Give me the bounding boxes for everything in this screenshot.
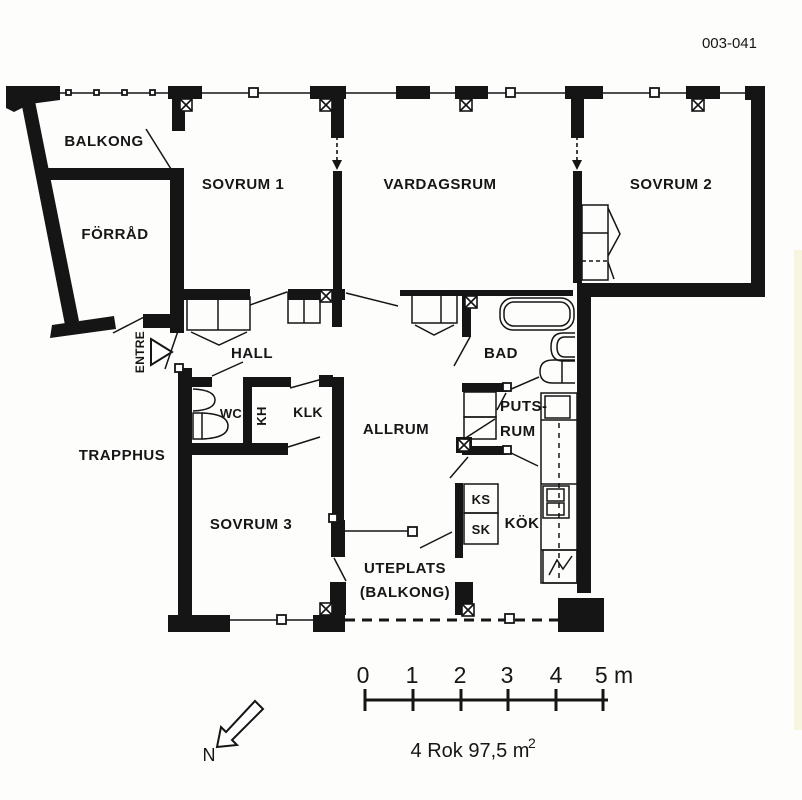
balkong-door [146, 129, 171, 169]
hall-wardrobe-1 [187, 297, 250, 345]
scale-bar [365, 689, 608, 711]
shaft-icon [458, 439, 470, 451]
room-label-wc: WC [220, 406, 243, 421]
walls [6, 86, 765, 632]
putsrum-upper-door [509, 377, 539, 390]
room-label-balkong: BALKONG [64, 133, 143, 150]
wall-forrad-east [170, 168, 184, 333]
shaft-icon [320, 603, 332, 615]
shaft-icon [462, 604, 474, 616]
room-label-entre: ENTRE [133, 331, 147, 373]
kok-door [450, 457, 468, 478]
putsrum-lower-door [509, 452, 538, 466]
area-caption: 4 Rok 97,5 m [411, 740, 530, 762]
room-label-klk: KLK [293, 404, 323, 420]
bad-door [454, 337, 470, 366]
appliance-zigzag-icon [549, 556, 572, 575]
sovrum1-door [250, 292, 287, 305]
hall-wardrobe-3 [412, 294, 457, 335]
wall-sovrum3-west [178, 368, 192, 615]
down-arrow-icon [332, 160, 342, 170]
entre-outer-door [113, 316, 146, 333]
room-label-sovrum2: SOVRUM 2 [630, 176, 712, 193]
bad-toilet [551, 333, 575, 361]
area-caption-exponent: 2 [528, 735, 536, 751]
shaft-icon [465, 296, 477, 308]
wall-balkong-forrad [40, 168, 180, 180]
drawing-number: 003-041 [702, 35, 757, 52]
north-arrow-icon [217, 701, 263, 747]
scale-tick-5: 5 m [595, 662, 633, 688]
sovrum2-wardrobe [582, 205, 620, 280]
room-label-putsrum-line1: PUTS- [500, 398, 548, 415]
room-label-uteplats-line2: (BALKONG) [360, 584, 450, 601]
shaft-icon [180, 99, 192, 111]
room-label-putsrum-line2: RUM [500, 423, 536, 440]
room-label-sovrum1: SOVRUM 1 [202, 176, 284, 193]
entre-arrow-icon [151, 339, 172, 365]
bad-sink [540, 360, 575, 383]
room-label-hall: HALL [231, 345, 273, 362]
room-label-vardagsrum: VARDAGSRUM [383, 176, 496, 193]
putsrum-shelves [464, 392, 496, 439]
shaft-icon [692, 99, 704, 111]
scale-tick-4: 4 [550, 662, 563, 688]
scale-tick-2: 2 [454, 662, 467, 688]
scan-artifact [794, 250, 802, 730]
shaft-icon [320, 99, 332, 111]
scale-tick-1: 1 [406, 662, 419, 688]
room-label-kh: KH [254, 406, 269, 425]
north-arrow [217, 701, 263, 747]
room-label-forrad: FÖRRÅD [81, 226, 148, 243]
vardagsrum-door [346, 293, 398, 306]
north-label: N [203, 745, 216, 765]
floorplan-page: 003-041 BALKONG FÖRRÅD SOVRUM 1 VARDAGSR… [0, 0, 802, 800]
uteplats-door-west [334, 558, 346, 581]
room-label-allrum: ALLRUM [363, 421, 429, 438]
room-label-uteplats-line1: UTEPLATS [364, 560, 446, 577]
scale-tick-0: 0 [357, 662, 370, 688]
opening-arrows [332, 136, 582, 170]
hall-leader-line [212, 362, 243, 376]
room-label-sk: SK [472, 522, 491, 537]
sovrum3-door [288, 437, 320, 447]
room-label-ks: KS [472, 492, 491, 507]
scale-tick-3: 3 [501, 662, 514, 688]
uteplats-door-allrum [420, 532, 452, 548]
room-label-bad: BAD [484, 345, 518, 362]
wc-sink [193, 389, 215, 411]
down-arrow-icon [572, 160, 582, 170]
room-label-kok: KÖK [505, 515, 540, 532]
floorplan-svg: 003-041 BALKONG FÖRRÅD SOVRUM 1 VARDAGSR… [0, 0, 802, 800]
kitchen-counter [541, 393, 577, 583]
room-label-trapphus: TRAPPHUS [79, 447, 166, 464]
wall-east-lower [577, 283, 591, 593]
room-label-sovrum3: SOVRUM 3 [210, 516, 292, 533]
wall-forrad-bottom [50, 316, 116, 338]
wall-west-diagonal [20, 96, 79, 325]
shaft-icon [460, 99, 472, 111]
bathtub [500, 298, 574, 330]
shaft-icon [320, 290, 332, 302]
wall-east-upper [751, 86, 765, 297]
